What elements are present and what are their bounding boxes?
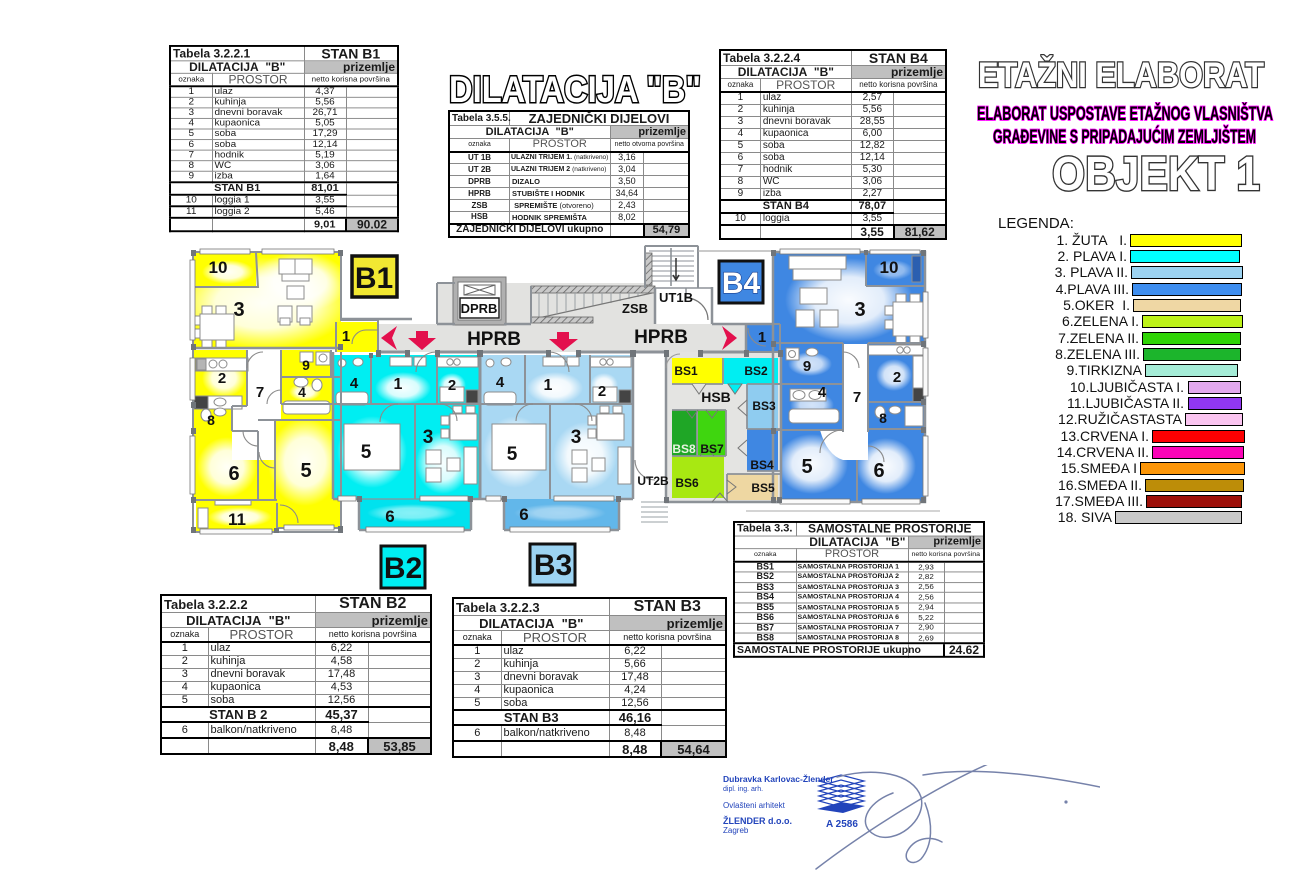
svg-text:dipl. ing. arh.: dipl. ing. arh. [723,786,763,793]
svg-text:1: 1 [758,329,766,346]
svg-text:Dubravka Karlovac-Žlender: Dubravka Karlovac-Žlender [723,773,834,784]
svg-text:BS7: BS7 [700,442,724,456]
svg-text:6: 6 [228,463,239,485]
svg-text:11: 11 [228,510,246,529]
svg-text:3: 3 [571,427,582,448]
svg-text:ELABORAT USPOSTAVE ETAŽNOG VLA: ELABORAT USPOSTAVE ETAŽNOG VLASNIŠTVA [977,103,1273,125]
svg-text:5: 5 [300,460,311,482]
svg-text:8: 8 [879,410,887,426]
svg-text:3: 3 [854,299,865,321]
svg-text:3: 3 [423,427,434,448]
svg-text:1: 1 [342,328,350,345]
svg-text:ETAŽNI ELABORAT: ETAŽNI ELABORAT [978,55,1264,94]
svg-text:HPRB: HPRB [467,329,521,350]
svg-text:6: 6 [873,460,884,482]
svg-text:2: 2 [218,370,226,387]
svg-text:4: 4 [496,374,505,391]
svg-text:A 2586: A 2586 [826,819,858,830]
svg-text:HSB: HSB [701,389,731,405]
svg-text:B3: B3 [534,549,572,582]
svg-text:BS2: BS2 [744,364,768,378]
svg-text:OBJEKT 1: OBJEKT 1 [1052,148,1260,201]
svg-text:1: 1 [544,377,553,394]
svg-text:B2: B2 [384,552,422,585]
svg-text:5: 5 [361,442,372,463]
svg-text:4: 4 [818,384,827,401]
svg-text:BS6: BS6 [675,476,699,490]
svg-text:4: 4 [350,375,359,392]
svg-text:ŽLENDER d.o.o.: ŽLENDER d.o.o. [723,815,792,826]
svg-text:5: 5 [801,456,812,478]
svg-text:7: 7 [256,384,264,401]
svg-text:10: 10 [880,258,899,277]
svg-text:2: 2 [598,383,606,400]
svg-text:8: 8 [207,412,215,428]
svg-text:3: 3 [233,299,244,321]
svg-text:5: 5 [507,444,518,465]
svg-text:UT1B: UT1B [659,290,693,305]
svg-text:BS1: BS1 [674,364,698,378]
svg-text:6: 6 [519,505,528,524]
svg-text:BS5: BS5 [751,481,775,495]
svg-text:UT2B: UT2B [637,474,669,488]
svg-text:7: 7 [853,389,861,406]
svg-text:BS4: BS4 [750,458,774,472]
svg-text:HPRB: HPRB [634,327,688,348]
svg-text:B4: B4 [722,267,761,300]
svg-text:2: 2 [448,377,456,394]
svg-text:6: 6 [385,507,394,526]
svg-text:ZSB: ZSB [622,301,648,316]
svg-text:BS3: BS3 [752,399,776,413]
svg-text:9: 9 [803,358,811,375]
svg-text:B1: B1 [355,262,393,295]
svg-text:GRAĐEVINE S PRIPADAJUĆIM ZEMLJ: GRAĐEVINE S PRIPADAJUĆIM ZEMLJIŠTEM [993,126,1256,148]
svg-text:2: 2 [893,369,901,386]
svg-text:Zagreb: Zagreb [723,826,749,835]
svg-text:BS8: BS8 [672,442,696,456]
svg-text:9: 9 [302,357,310,373]
svg-text:DILATACIJA "B": DILATACIJA "B" [449,70,701,110]
svg-text:DPRB: DPRB [461,301,498,316]
svg-text:Ovlašteni arhitekt: Ovlašteni arhitekt [723,801,786,810]
svg-text:1: 1 [394,376,403,393]
svg-text:10: 10 [209,258,228,277]
svg-text:4: 4 [298,384,306,400]
